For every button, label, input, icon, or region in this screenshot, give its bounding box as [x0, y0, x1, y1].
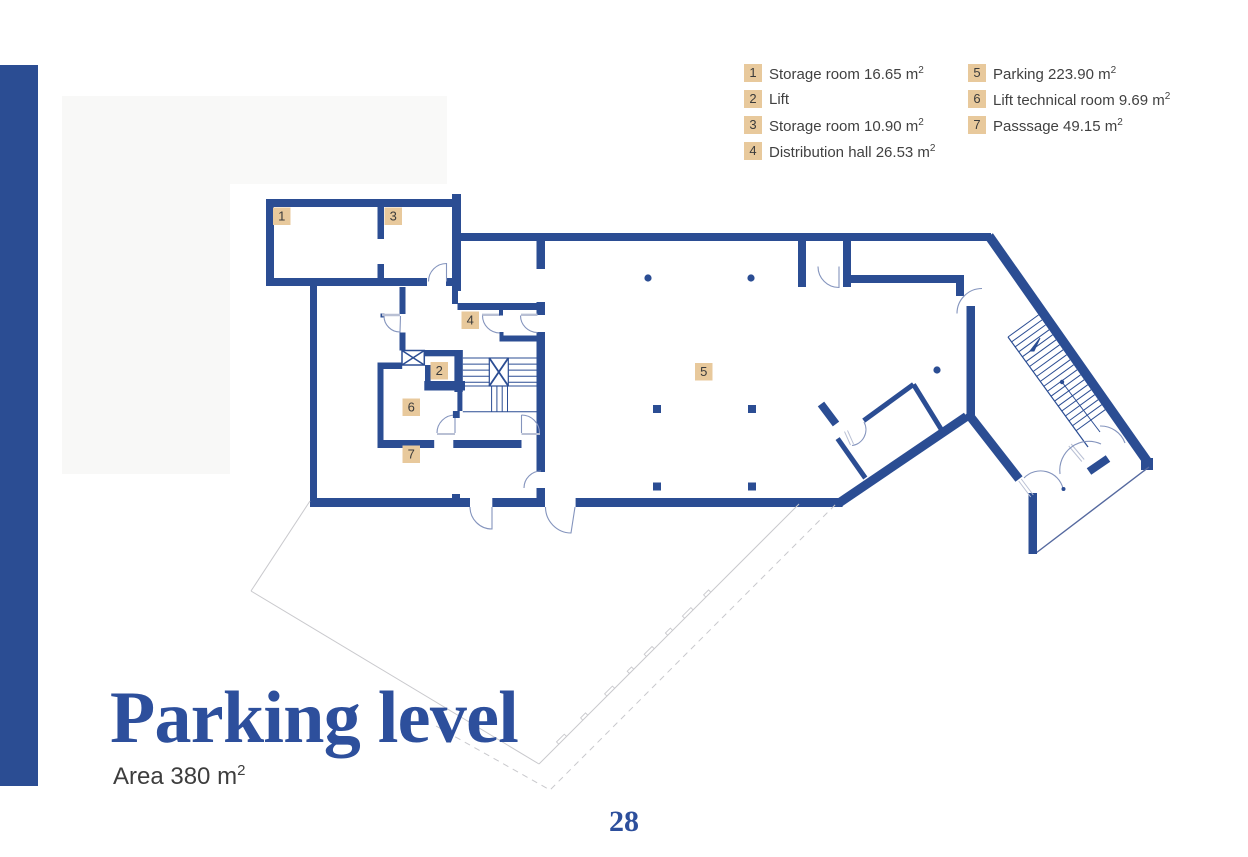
svg-text:6: 6	[408, 400, 415, 415]
svg-text:1: 1	[278, 209, 285, 224]
svg-text:4: 4	[467, 313, 474, 328]
svg-text:3: 3	[390, 209, 397, 224]
svg-text:2: 2	[436, 363, 443, 378]
svg-text:7: 7	[408, 447, 415, 462]
svg-text:5: 5	[700, 364, 707, 379]
